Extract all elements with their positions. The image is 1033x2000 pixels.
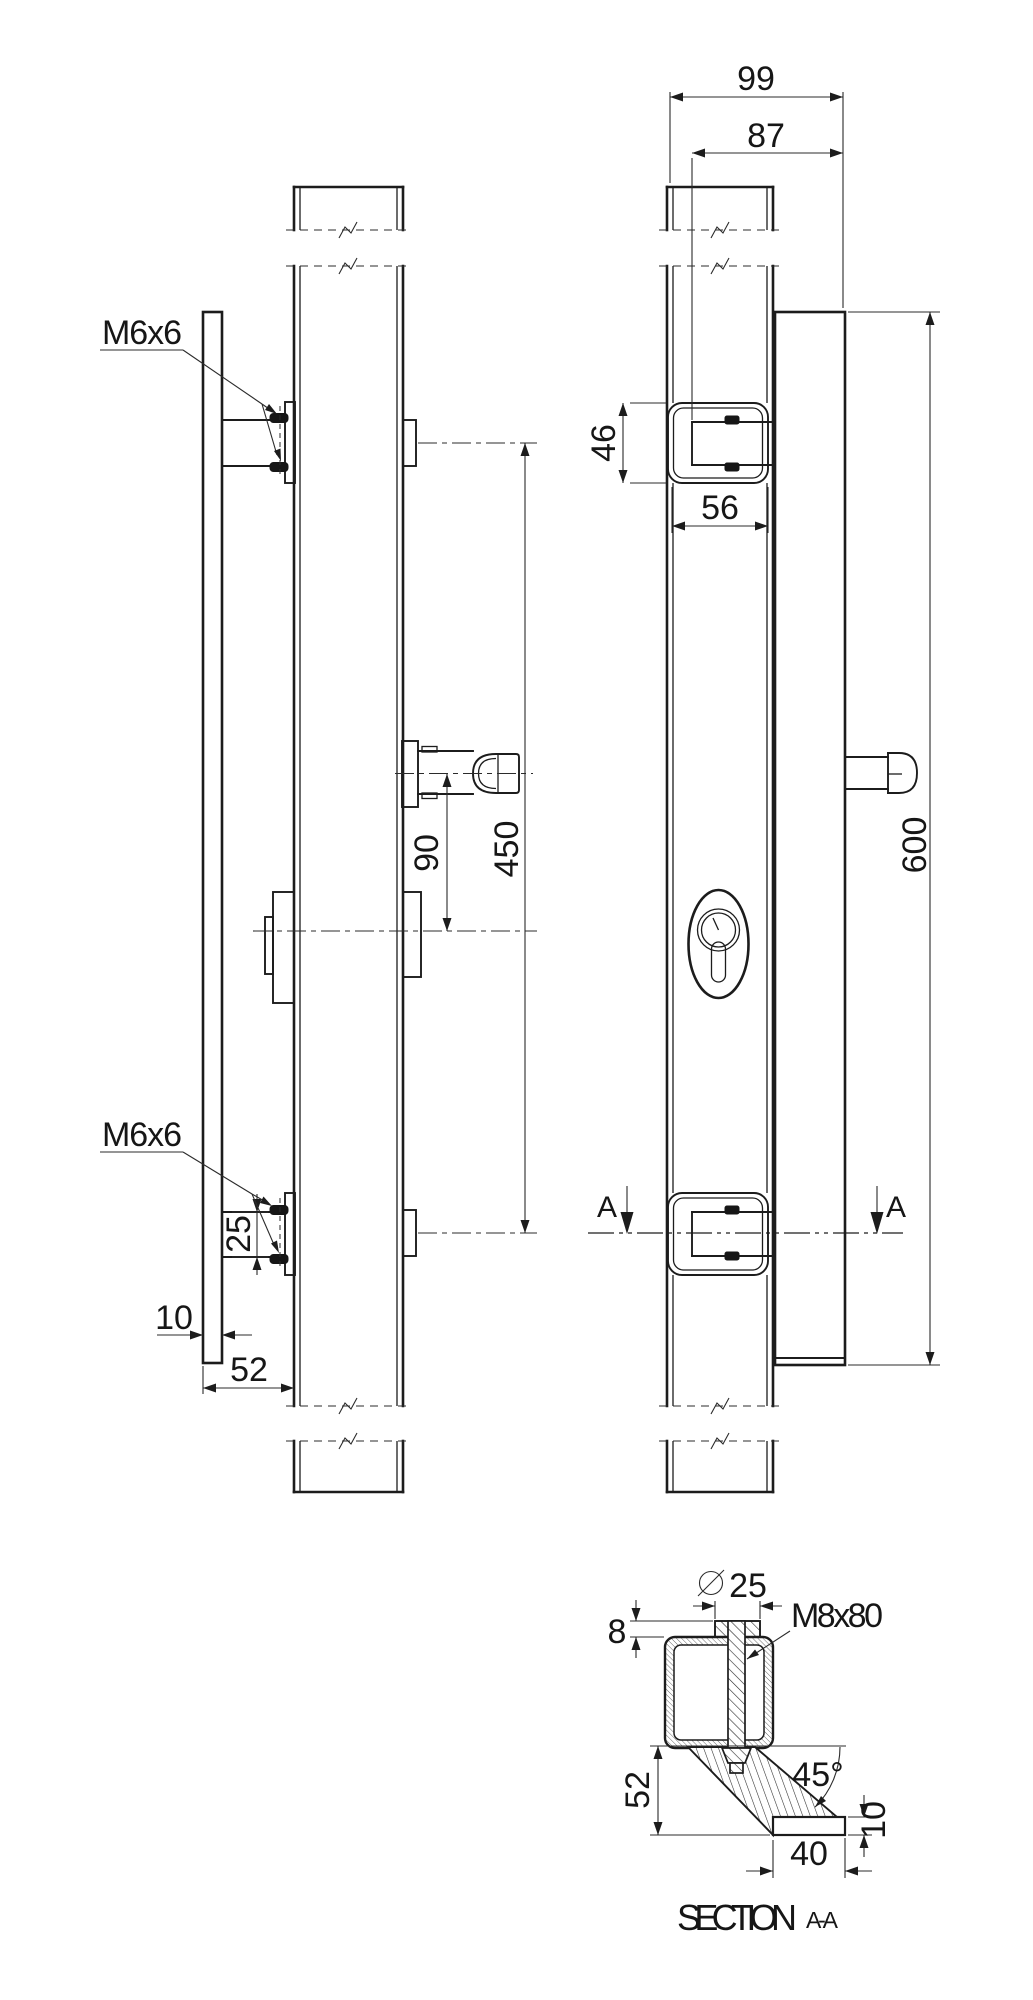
section-view: 25 8 (608, 1567, 893, 1938)
set-screw-bottom-1 (270, 1206, 288, 1215)
dim-56: 56 (672, 487, 768, 533)
dim-52-offset: 52 (203, 1351, 294, 1394)
dim-90: 90 (408, 774, 452, 931)
dim-90-value: 90 (408, 834, 446, 872)
dim-dia-25-value: 25 (729, 1567, 767, 1605)
section-title-text: SECTION (677, 1897, 798, 1938)
front-view: A A 99 87 46 (585, 60, 940, 1492)
dim-99-value: 99 (737, 60, 775, 98)
section-title-ref: A-A (806, 1907, 839, 1933)
dim-450-value: 450 (488, 821, 526, 878)
dim-dia-25: 25 (693, 1567, 782, 1619)
dim-10-value: 10 (155, 1299, 193, 1337)
set-screw-bottom-2 (270, 1255, 288, 1264)
door-leaf-front (659, 187, 781, 1492)
dim-25-screws: 25 (220, 1194, 268, 1275)
diameter-icon (698, 1570, 724, 1596)
dim-600-value: 600 (896, 817, 934, 874)
dim-10-section-value: 10 (855, 1801, 893, 1839)
dim-25-value: 25 (220, 1215, 258, 1253)
mount-bracket-top-front (668, 403, 772, 483)
handle-bar-front (775, 312, 845, 1365)
dim-450: 450 (488, 443, 530, 1233)
handle-bar-side (203, 312, 222, 1363)
dim-45deg-value: 45° (792, 1756, 843, 1794)
thumbturn-knob-side (395, 741, 533, 807)
handle-mount-top (222, 402, 537, 483)
bolt-label: M8x80 (791, 1597, 883, 1635)
through-pin-bottom (403, 1210, 416, 1256)
dim-87-value: 87 (747, 117, 785, 155)
m6x6-bottom-label: M6x6 (102, 1116, 182, 1154)
dim-52-value: 52 (230, 1351, 268, 1389)
through-pin-top (403, 420, 416, 466)
section-title: SECTION A-A (677, 1897, 839, 1938)
callout-m6x6-top: M6x6 (100, 314, 281, 461)
dim-10-section: 10 (848, 1795, 893, 1857)
section-marker-a-left: A (597, 1191, 617, 1224)
mount-bracket-bottom-front (668, 1193, 772, 1275)
dim-46-value: 46 (585, 424, 623, 462)
lock-cylinder-side (253, 892, 537, 1003)
technical-drawing-page: 90 450 25 10 (0, 0, 1033, 2000)
dim-52-section-value: 52 (619, 1771, 657, 1809)
dim-56-value: 56 (701, 489, 739, 527)
section-marker-a-right: A (886, 1191, 906, 1224)
cylinder-keyhole (689, 890, 749, 998)
dim-8-value: 8 (608, 1613, 627, 1651)
m6x6-top-label: M6x6 (102, 314, 182, 352)
break-lines-side (286, 222, 412, 1449)
set-screw-top-2 (270, 463, 288, 472)
dim-40-value: 40 (790, 1835, 828, 1873)
foot-plate-section (773, 1817, 845, 1835)
drawing-canvas: 90 450 25 10 (0, 0, 1033, 2000)
dim-40: 40 (746, 1835, 872, 1878)
thumbturn-knob-front (846, 753, 917, 793)
door-leaf-side (286, 187, 412, 1492)
side-view: 90 450 25 10 (100, 187, 537, 1492)
set-screw-top-1 (270, 414, 288, 423)
dim-99: 99 (670, 60, 843, 308)
dim-46: 46 (585, 403, 666, 483)
